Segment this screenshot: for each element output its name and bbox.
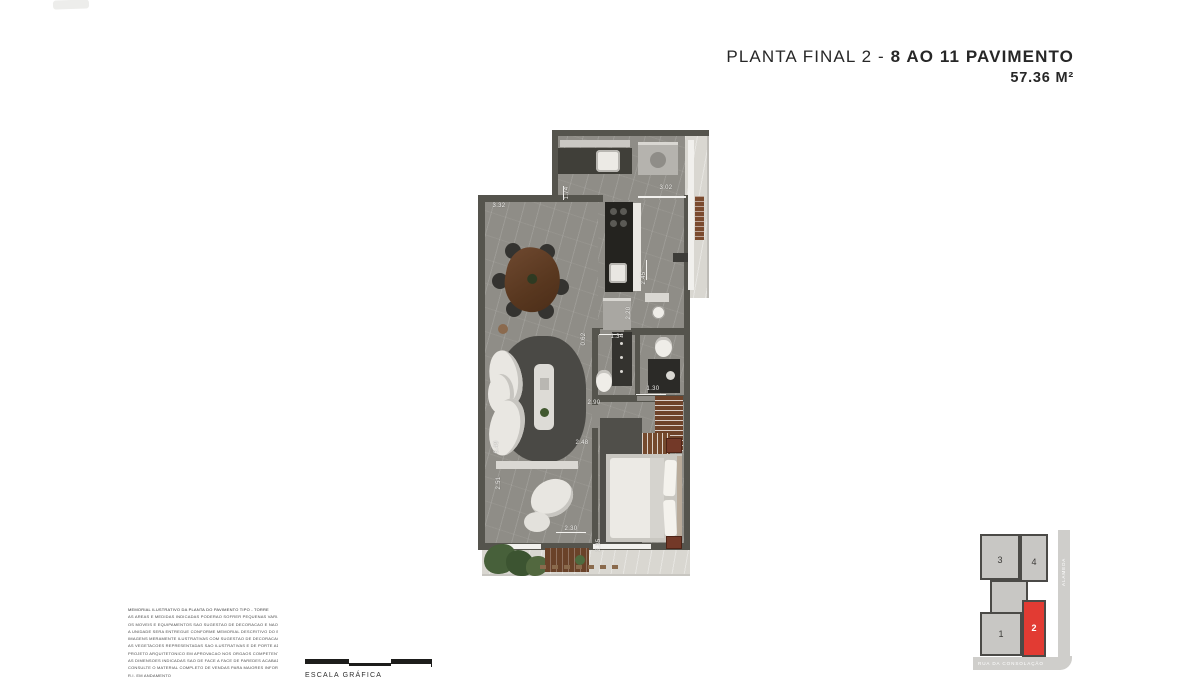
wall-cabinet — [673, 253, 688, 262]
table-centerpiece — [526, 273, 538, 285]
dim-label: 2.90 — [588, 400, 601, 406]
scale-label: ESCALA GRÁFICA — [305, 672, 382, 679]
bed-pillow — [663, 500, 677, 537]
dim-label: 1.30 — [647, 386, 660, 392]
unit-number-1: 1 — [998, 629, 1003, 639]
hall-basin — [652, 306, 665, 319]
shelf-dot — [620, 356, 623, 359]
dim-label: 0.62 — [581, 333, 587, 346]
balcony-glass-panel — [688, 140, 694, 290]
scale-segment — [349, 663, 391, 666]
dim-label: 2.51 — [496, 477, 502, 490]
bed-pillow — [663, 460, 677, 497]
dim-label: 6.49 — [494, 441, 500, 454]
dim-label: 1.34 — [611, 334, 624, 340]
scale-end-tick — [431, 659, 432, 667]
disclaimer-line: CONSULTE O MATERIAL COMPLETO DE VENDAS P… — [128, 664, 278, 671]
dim-label: 2.45 — [641, 272, 647, 285]
nightstand — [666, 438, 682, 453]
unit-number-4: 4 — [1031, 557, 1036, 567]
plan-title-emphasis: 8 AO 11 PAVIMENTO — [891, 47, 1074, 66]
dim-tick — [636, 394, 666, 395]
laundry-shelf — [560, 140, 630, 147]
scale-segment — [391, 659, 431, 664]
washer-door-icon — [650, 152, 666, 168]
table-tray — [540, 378, 549, 390]
burner — [620, 208, 627, 215]
street-right-label: ALAMEDA — [1061, 558, 1066, 586]
burner — [620, 220, 627, 227]
disclaimer-line: MEMORIAL ILUSTRATIVO DA PLANTA DO PAVIME… — [128, 606, 278, 613]
dim-label: 2.30 — [565, 526, 578, 532]
street-bottom-label: RUA DA CONSOLAÇÃO — [978, 661, 1044, 666]
shelf-dot — [620, 370, 623, 373]
nightstand — [666, 536, 682, 549]
bed-blanket — [650, 458, 664, 538]
vanity-basin-icon — [666, 371, 675, 380]
dim-label: 3.02 — [660, 185, 673, 191]
graphic-scale: ESCALA GRÁFICA — [305, 655, 435, 685]
bedroom-door-opening — [592, 405, 598, 428]
disclaimer-block: MEMORIAL ILUSTRATIVO DA PLANTA DO PAVIME… — [128, 606, 278, 679]
disclaimer-line: IMAGENS MERAMENTE ILUSTRATIVAS COM SUGES… — [128, 635, 278, 642]
burner — [610, 208, 617, 215]
side-stool — [498, 324, 508, 334]
scale-segment — [305, 659, 349, 664]
tv-console — [496, 461, 578, 469]
dim-tick — [556, 532, 586, 533]
dim-label: 1.74 — [564, 187, 570, 200]
floor-plan: 3.32 1.74 3.02 2.45 2.20 0.62 1.34 2.90 … — [478, 108, 714, 580]
corner-smudge — [53, 0, 89, 10]
disclaimer-line: OS MOVEIS E EQUIPAMENTOS SAO SUGESTAO DE… — [128, 621, 278, 628]
unit-number-2: 2 — [1031, 623, 1036, 633]
wall-bath-divider — [635, 333, 640, 395]
kitchen-counter-edge — [633, 203, 641, 291]
planter-sprig-icon — [575, 555, 585, 565]
laundry-counter — [558, 148, 632, 174]
balcony-wood-slats — [695, 196, 704, 240]
wall-top — [552, 130, 709, 136]
disclaimer-line: AS DIMENSOES INDICADAS SAO DE FACE A FAC… — [128, 657, 278, 664]
page-title: PLANTA FINAL 2 - 8 AO 11 PAVIMENTO 57.36… — [726, 47, 1074, 86]
suite-toilet — [655, 337, 672, 357]
washing-machine — [638, 142, 678, 175]
wall-laundry-bottom — [553, 195, 603, 202]
bench — [645, 293, 669, 302]
wall-mid-vertical — [592, 328, 598, 550]
shelf-dot — [620, 342, 623, 345]
dim-label: 2.20 — [626, 307, 632, 320]
plan-area: 57.36 M² — [726, 70, 1074, 86]
disclaimer-line: R.I. EM ANDAMENTO — [128, 672, 278, 679]
table-plant-icon — [540, 408, 549, 417]
bed — [606, 454, 682, 542]
disclaimer-line: AS AREAS E MEDIDAS INDICADAS PODERAO SOF… — [128, 613, 278, 620]
street-right — [1058, 530, 1070, 658]
kitchen-opening-line — [638, 196, 686, 198]
dim-label: 2.35 — [596, 539, 602, 552]
key-plan: ALAMEDA RUA DA CONSOLAÇÃO 3 4 1 2 — [973, 528, 1083, 678]
wc-toilet — [596, 370, 612, 392]
laundry-sink — [596, 150, 620, 172]
ottoman — [524, 512, 550, 532]
wall-living-top — [478, 195, 558, 202]
disclaimer-line: AS VEGETACOES REPRESENTADAS SAO ILUSTRAT… — [128, 642, 278, 649]
floorplan-sheet: PLANTA FINAL 2 - 8 AO 11 PAVIMENTO 57.36… — [0, 0, 1200, 700]
wall-left — [478, 195, 485, 550]
burner — [610, 220, 617, 227]
coffee-table — [534, 364, 554, 430]
wc-cabinet — [612, 332, 632, 386]
cooktop-icon — [608, 206, 630, 232]
plan-title-prefix: PLANTA FINAL 2 - — [726, 47, 890, 66]
headboard — [677, 456, 682, 540]
kitchen-sink — [609, 263, 627, 283]
plan-title: PLANTA FINAL 2 - 8 AO 11 PAVIMENTO — [726, 47, 1074, 67]
disclaimer-line: A UNIDADE SERA ENTREGUE CONFORME MEMORIA… — [128, 628, 278, 635]
unit-number-3: 3 — [997, 555, 1002, 565]
deck-slats — [540, 565, 620, 569]
dim-label: 2.48 — [576, 440, 589, 446]
dim-label: 3.32 — [493, 203, 506, 209]
disclaimer-line: PROJETO ARQUITETONICO EM APROVACAO NOS O… — [128, 650, 278, 657]
